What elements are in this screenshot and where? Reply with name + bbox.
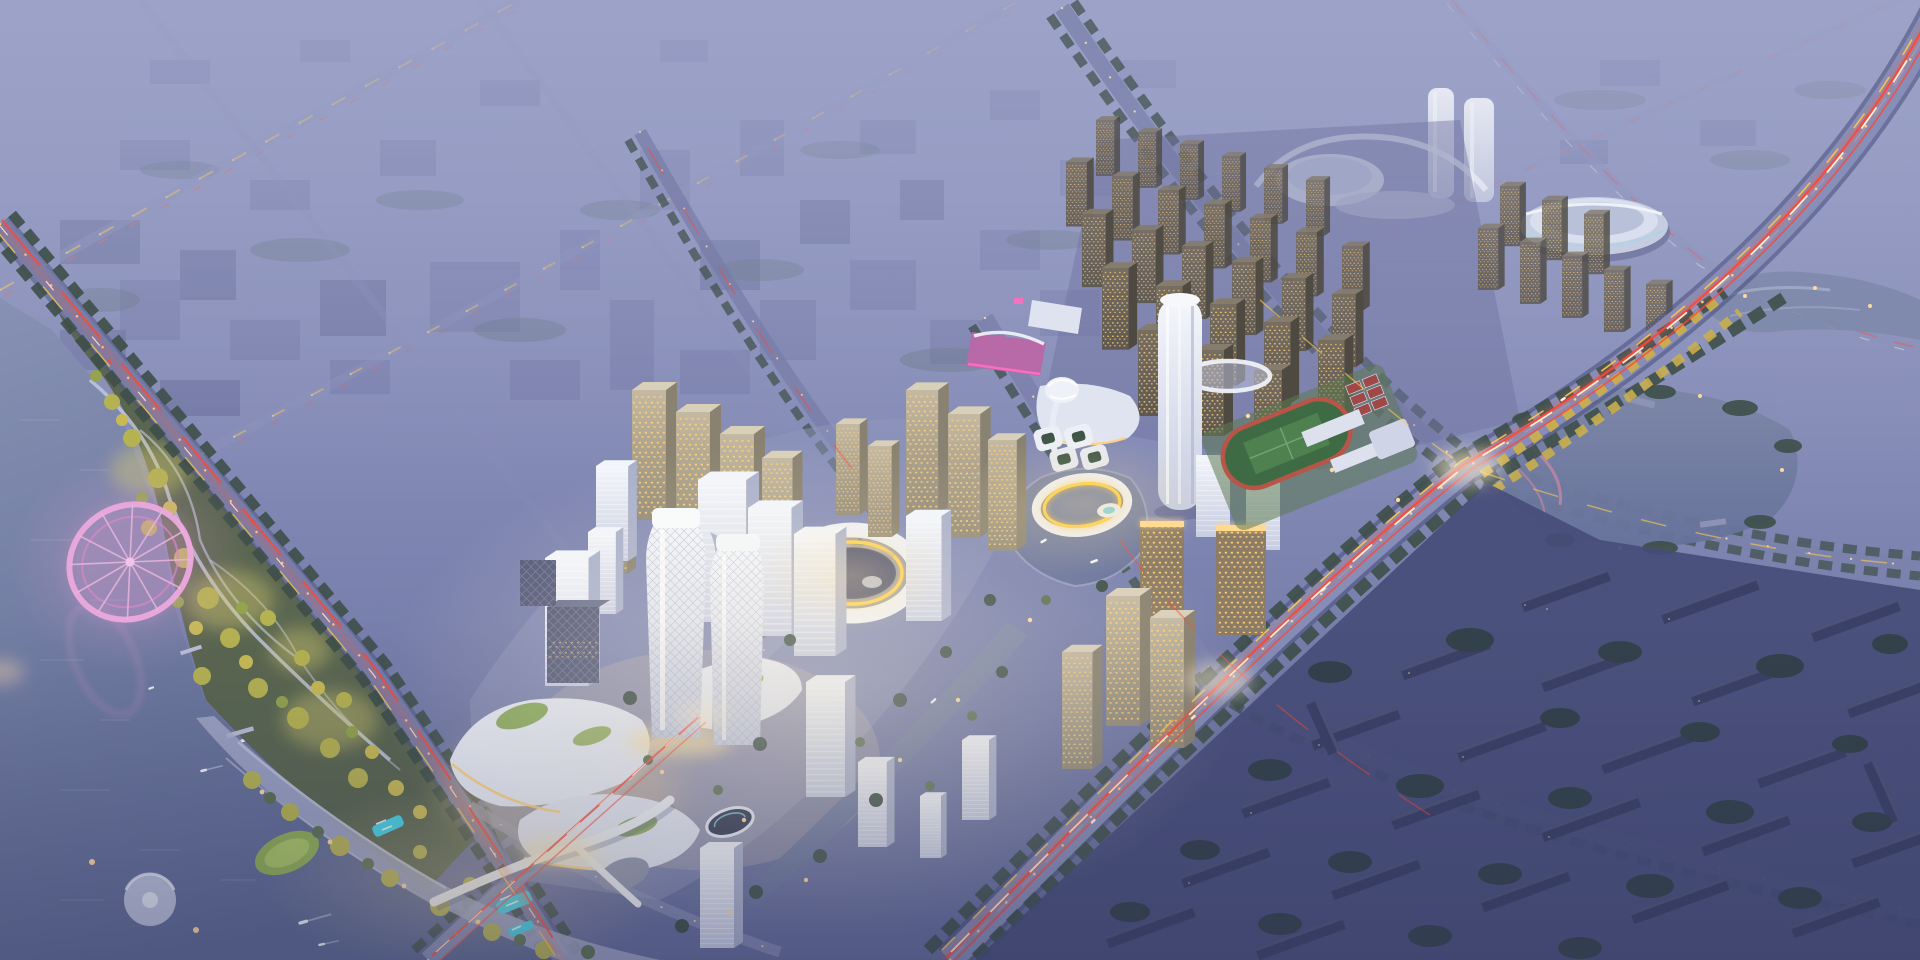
bottom-vignette [0, 620, 1920, 960]
rendering-canvas: Aerial dusk rendering of a riverside cit… [0, 0, 1920, 960]
lagoon-glow [955, 435, 1215, 575]
ring-glow [752, 517, 952, 633]
masterplan-rendering: Aerial dusk rendering of a riverside cit… [0, 0, 1920, 960]
